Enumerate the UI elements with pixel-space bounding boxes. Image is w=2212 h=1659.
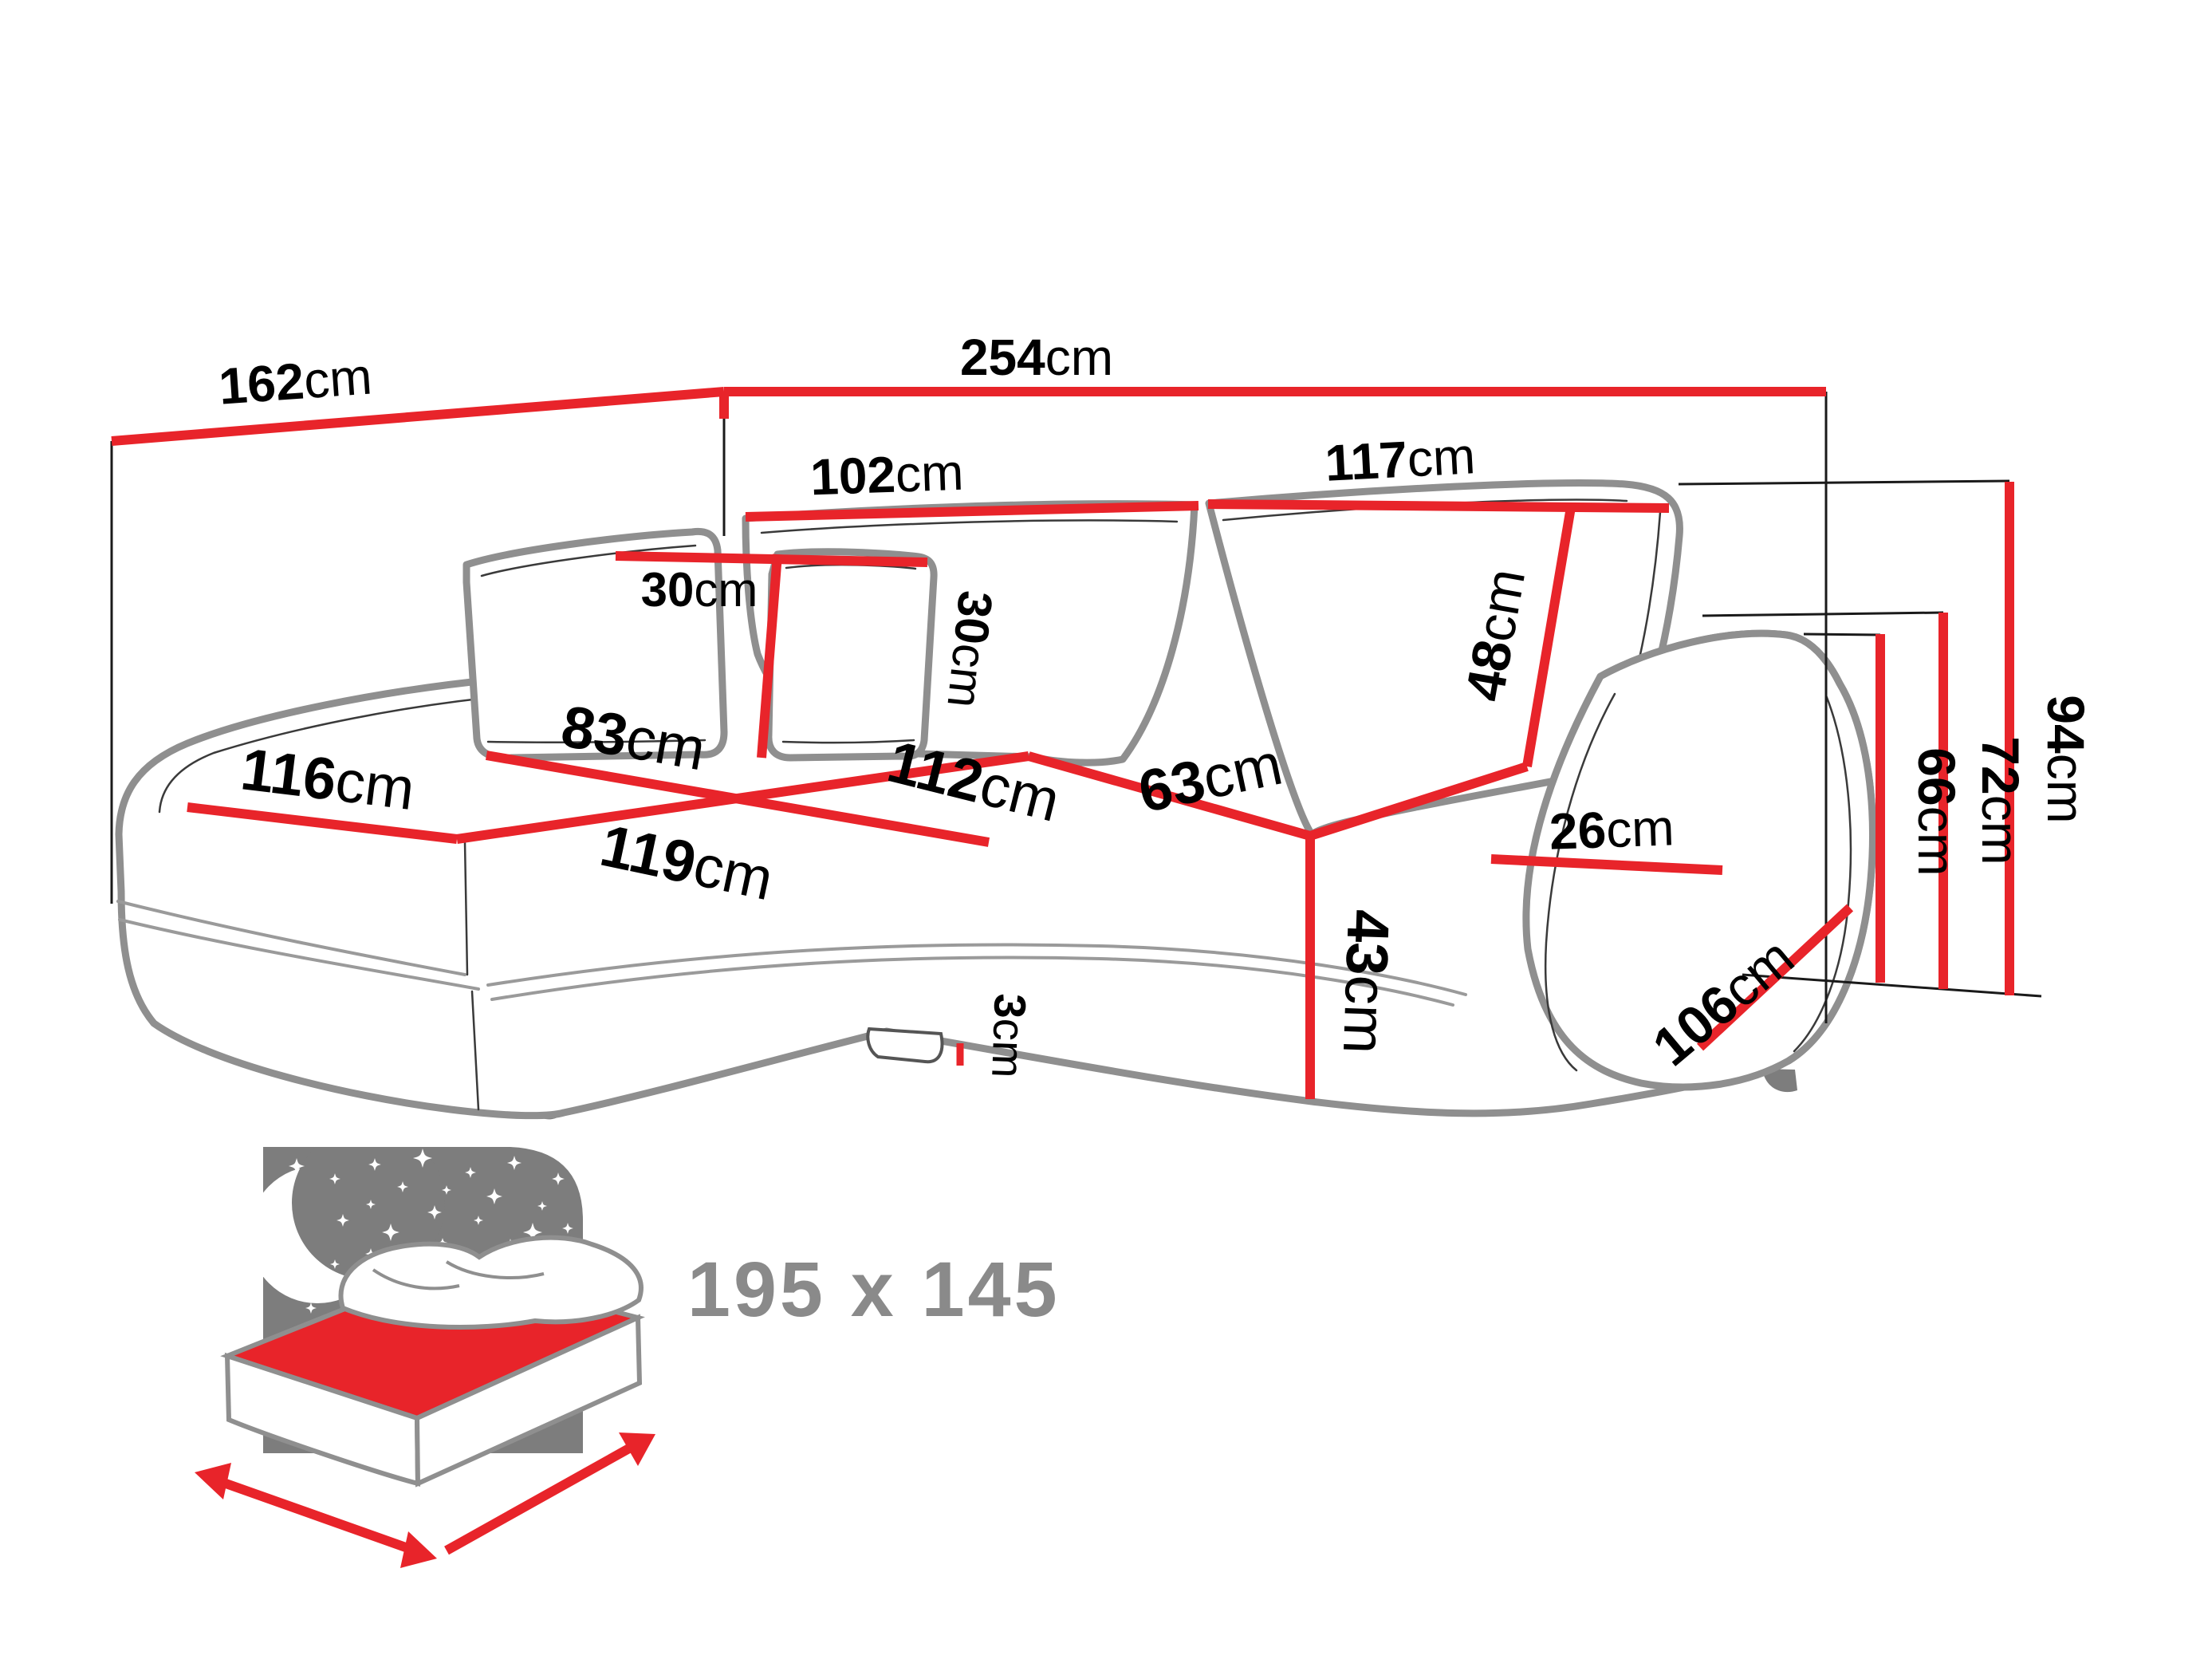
dim-117-line [1208,504,1669,508]
dim-66-label: 66cm [1907,747,1966,876]
arrow-width-line [217,1480,415,1551]
diagram-canvas: 162cm 254cm 102cm 117cm 30cm 30cm 48cm 8… [0,0,2212,1659]
height-ref-mid [1702,613,1943,616]
dim-30-width-label: 30cm [641,563,758,617]
dim-117-label: 117cm [1324,427,1477,492]
duvet-icon [340,1238,640,1327]
arrow-width-head-right [400,1531,437,1568]
dim-254-line [724,392,1826,419]
height-ref-top [1679,481,2009,484]
dim-162-label: 162cm [217,347,374,415]
dim-94-label: 94cm [2037,695,2096,823]
dim-30-width-line [616,556,927,562]
height-ref-low [1804,634,1880,635]
dim-254-label: 254cm [960,329,1113,386]
sleeping-function-icon: 195 x 145 [195,1126,1061,1568]
dim-102-label: 102cm [809,443,964,506]
arrow-width-head-left [195,1463,231,1499]
sofa-dimension-diagram: 162cm 254cm 102cm 117cm 30cm 30cm 48cm 8… [0,0,2212,1659]
pillow-front [769,552,934,758]
dim-26-label: 26cm [1549,798,1675,860]
dim-43-label: 43cm [1331,908,1402,1055]
leg-front-middle [868,1029,942,1062]
sleeping-area-label: 195 x 145 [687,1246,1061,1333]
dim-162-line [112,392,724,441]
dim-72-label: 72cm [1971,736,2030,865]
arrow-length-line [447,1445,635,1551]
dim-3-label: 3cm [982,993,1036,1079]
